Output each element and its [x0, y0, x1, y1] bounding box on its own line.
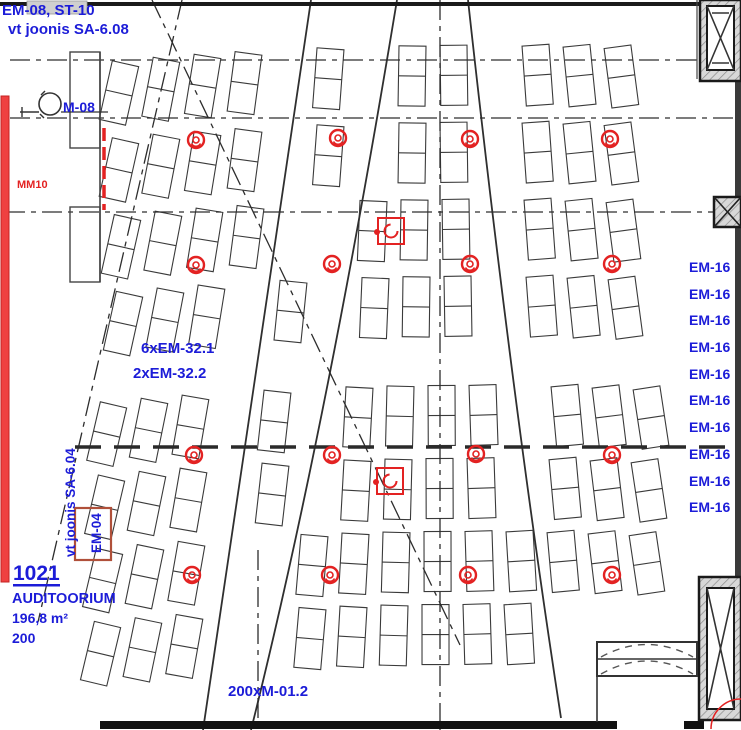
seat-block — [381, 532, 410, 593]
seat-block — [522, 121, 553, 183]
label-em16: EM-16 — [689, 419, 730, 435]
speaker-icon — [460, 567, 476, 583]
seat-block — [549, 457, 581, 519]
label-em16: EM-16 — [689, 446, 730, 462]
seat-block — [563, 121, 596, 183]
seat-block — [590, 458, 624, 521]
seat-block — [343, 387, 373, 448]
seat-block — [629, 532, 665, 595]
label-em16: EM-16 — [689, 392, 730, 408]
floor-plan-canvas[interactable]: EM-08, ST-10 vt joonis SA-6.08 M-08 MM10… — [0, 0, 741, 730]
red-installations — [1, 96, 104, 582]
label-em16: EM-16 — [689, 499, 730, 515]
seat-block — [339, 533, 369, 594]
wall-highlight-red-bar — [1, 96, 9, 582]
speaker-icon — [462, 131, 478, 147]
room-capacity: 200 — [12, 630, 36, 646]
label-em04: EM-04 — [89, 513, 104, 553]
speaker-icon — [324, 447, 340, 463]
label-ref-sa604: vt joonis SA-6.04 — [63, 448, 78, 557]
seat-block — [294, 608, 326, 670]
seat-block — [633, 386, 669, 449]
seat-block — [606, 199, 641, 262]
seat-block — [442, 199, 470, 259]
seat-block — [379, 605, 408, 666]
seat-block — [87, 402, 127, 467]
bottom-cabinet — [597, 642, 697, 722]
seat-block — [184, 54, 220, 118]
em16-label-column: EM-16 EM-16 EM-16 EM-16 EM-16 EM-16 EM-1… — [689, 259, 730, 515]
vent-grille-icon — [714, 197, 741, 227]
seat-block — [551, 384, 583, 446]
seat-block — [567, 275, 600, 337]
seat-block — [398, 123, 426, 183]
seat-block — [184, 131, 220, 195]
seat-block — [504, 603, 534, 664]
seat-block — [467, 458, 496, 519]
label-seat-count: 200xM-01.2 — [228, 683, 308, 700]
seat-block — [398, 46, 426, 106]
seat-block — [103, 291, 142, 355]
seat-block — [337, 606, 367, 667]
seat-block — [547, 530, 579, 592]
seat-block — [440, 122, 468, 182]
seat-block — [313, 48, 344, 110]
speaker-icon — [604, 567, 620, 583]
label-m08: M-08 — [63, 99, 95, 115]
label-em16: EM-16 — [689, 312, 730, 328]
seat-block — [563, 44, 596, 106]
seat-block — [604, 45, 639, 108]
seat-block — [80, 621, 120, 686]
seat-block — [444, 276, 472, 336]
floor-box-icon — [374, 218, 404, 244]
floor-box-icon — [373, 468, 403, 494]
speaker-icon — [324, 256, 340, 272]
seat-block — [170, 468, 207, 532]
seat-block — [101, 215, 140, 279]
label-ref-sa608: vt joonis SA-6.08 — [8, 21, 129, 38]
reference-gridlines — [5, 0, 741, 730]
seat-block — [608, 276, 643, 339]
aisle-curves — [203, 0, 561, 730]
label-em08-st10: EM-08, ST-10 — [2, 2, 95, 19]
seat-block — [227, 129, 262, 192]
seat-block — [99, 61, 139, 125]
room-name: AUDITOORIUM — [12, 591, 116, 607]
auditorium-plan-drawing: EM-08, ST-10 vt joonis SA-6.08 M-08 MM10… — [0, 0, 741, 730]
seat-block — [189, 285, 225, 349]
seat-block — [592, 385, 626, 448]
seat-block — [142, 134, 180, 198]
speaker-icon — [604, 447, 620, 463]
seat-block — [127, 471, 165, 535]
column-shaft-bottom-right — [699, 577, 741, 729]
label-mm10: MM10 — [17, 179, 48, 191]
seat-block — [522, 44, 553, 106]
label-em16: EM-16 — [689, 473, 730, 489]
seat-block — [274, 280, 307, 342]
seat-block — [424, 531, 451, 591]
seat-block — [341, 460, 371, 521]
room-tag: 1021 AUDITOORIUM 196,8 m² 200 — [12, 562, 116, 646]
speaker-icon — [188, 132, 204, 148]
walls — [0, 0, 741, 729]
seat-block — [125, 545, 164, 609]
room-number-underline — [13, 584, 60, 587]
seat-block — [386, 386, 414, 447]
seat-block — [313, 125, 344, 187]
seat-block — [144, 211, 182, 275]
seat-block — [129, 398, 167, 462]
seat-block — [524, 198, 555, 260]
label-em16: EM-16 — [689, 339, 730, 355]
seat-block — [359, 278, 389, 339]
seat-block — [402, 277, 430, 337]
room-area: 196,8 m² — [12, 610, 68, 626]
speaker-icon — [188, 257, 204, 273]
seat-block — [257, 390, 291, 453]
label-em16: EM-16 — [689, 259, 730, 275]
seat-block — [565, 198, 598, 260]
label-em322: 2xEM-32.2 — [133, 365, 206, 382]
seat-block — [506, 530, 537, 592]
speaker-icon — [604, 256, 620, 272]
speaker-icon — [602, 131, 618, 147]
label-em16: EM-16 — [689, 286, 730, 302]
column-shaft-top-right — [700, 0, 741, 81]
seat-block — [166, 615, 203, 679]
seat-block — [588, 531, 622, 594]
seat-block — [526, 275, 557, 337]
seat-block — [469, 385, 498, 446]
seat-block — [296, 534, 328, 596]
seat-block — [631, 459, 667, 522]
seat-block — [229, 206, 264, 269]
label-em16: EM-16 — [689, 366, 730, 382]
seat-block — [255, 463, 289, 526]
room-number: 1021 — [13, 562, 60, 585]
seat-block — [357, 201, 387, 262]
seat-block — [428, 385, 455, 445]
label-em321: 6xEM-32.1 — [141, 340, 214, 357]
seat-block — [172, 395, 209, 459]
seat-block — [227, 52, 262, 115]
seat-block — [440, 45, 468, 105]
seat-block — [123, 618, 162, 682]
seat-block — [463, 604, 492, 665]
